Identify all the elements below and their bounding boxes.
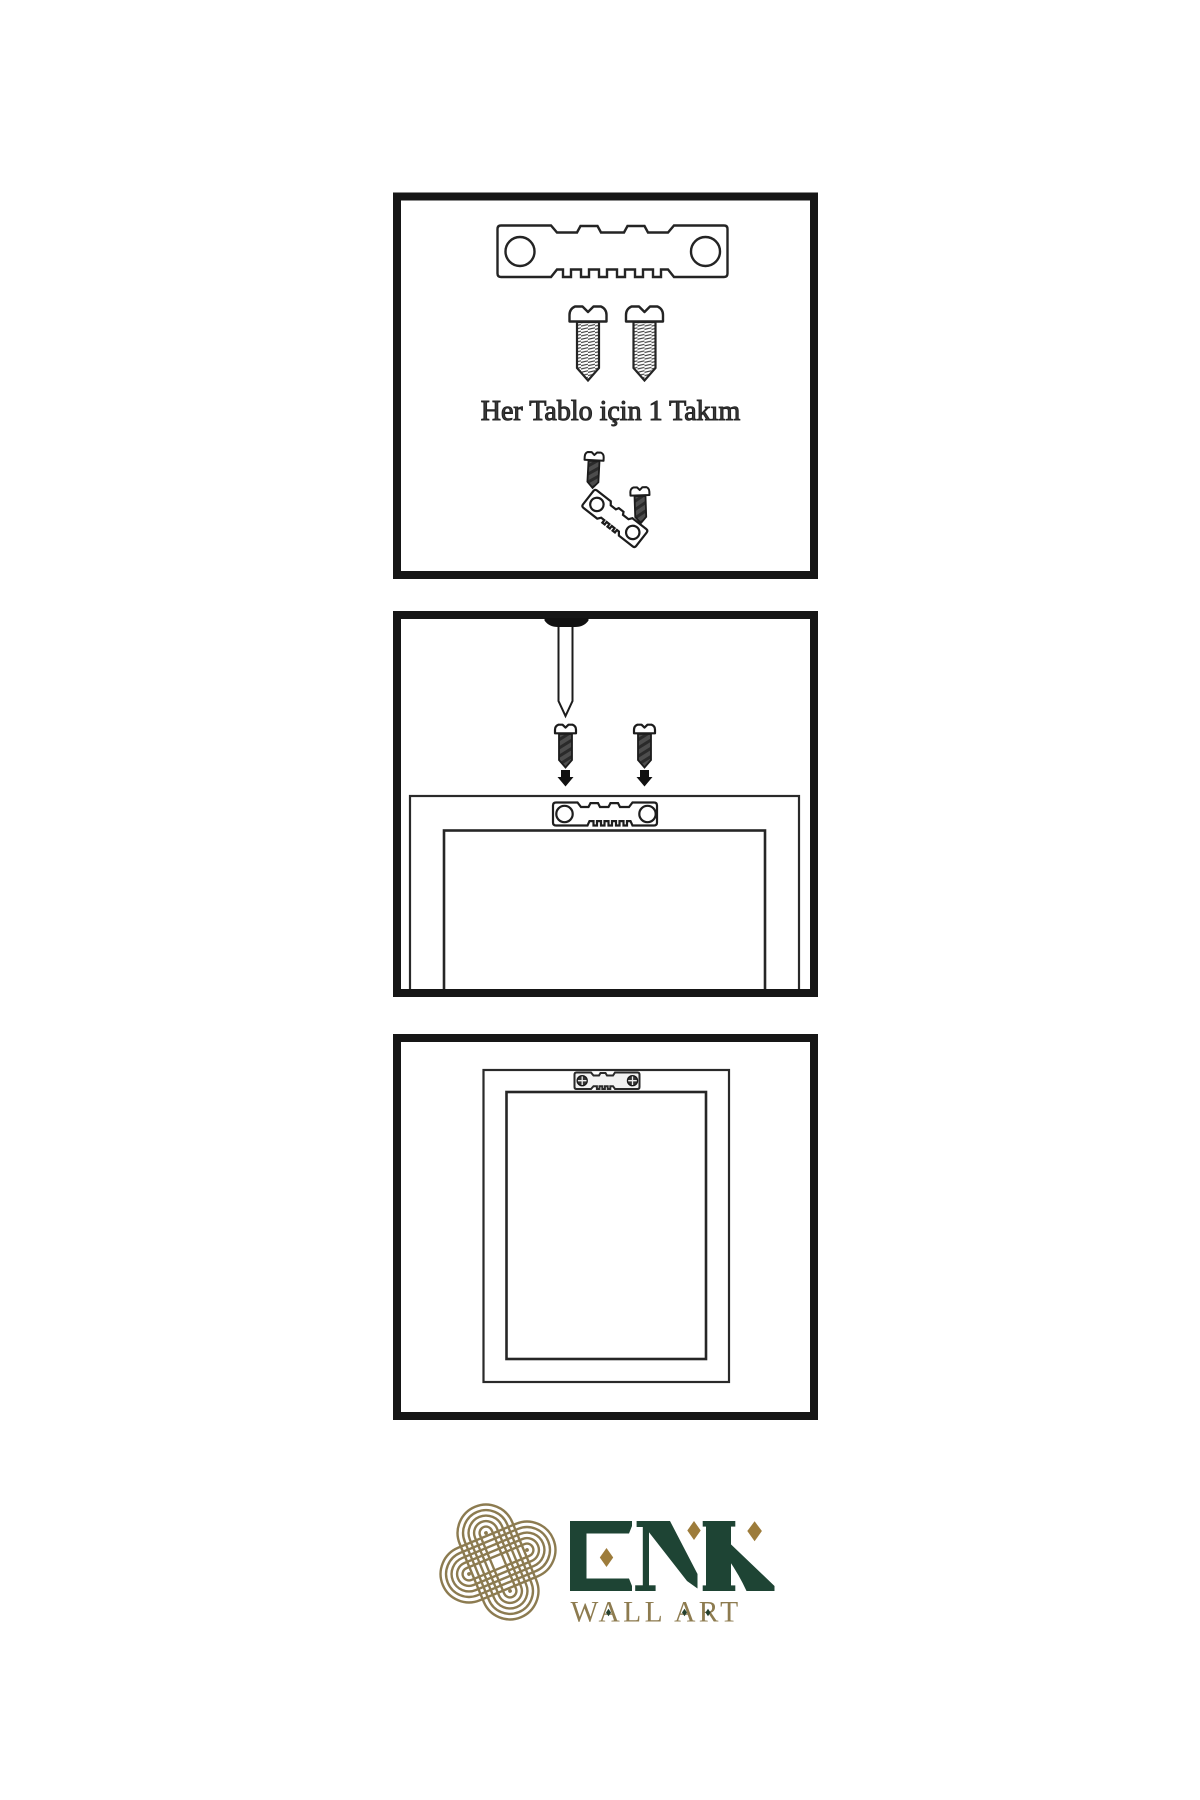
- svg-text:WALL ART: WALL ART: [571, 1597, 742, 1629]
- svg-text:Her Tablo için 1 Takım: Her Tablo için 1 Takım: [481, 396, 741, 427]
